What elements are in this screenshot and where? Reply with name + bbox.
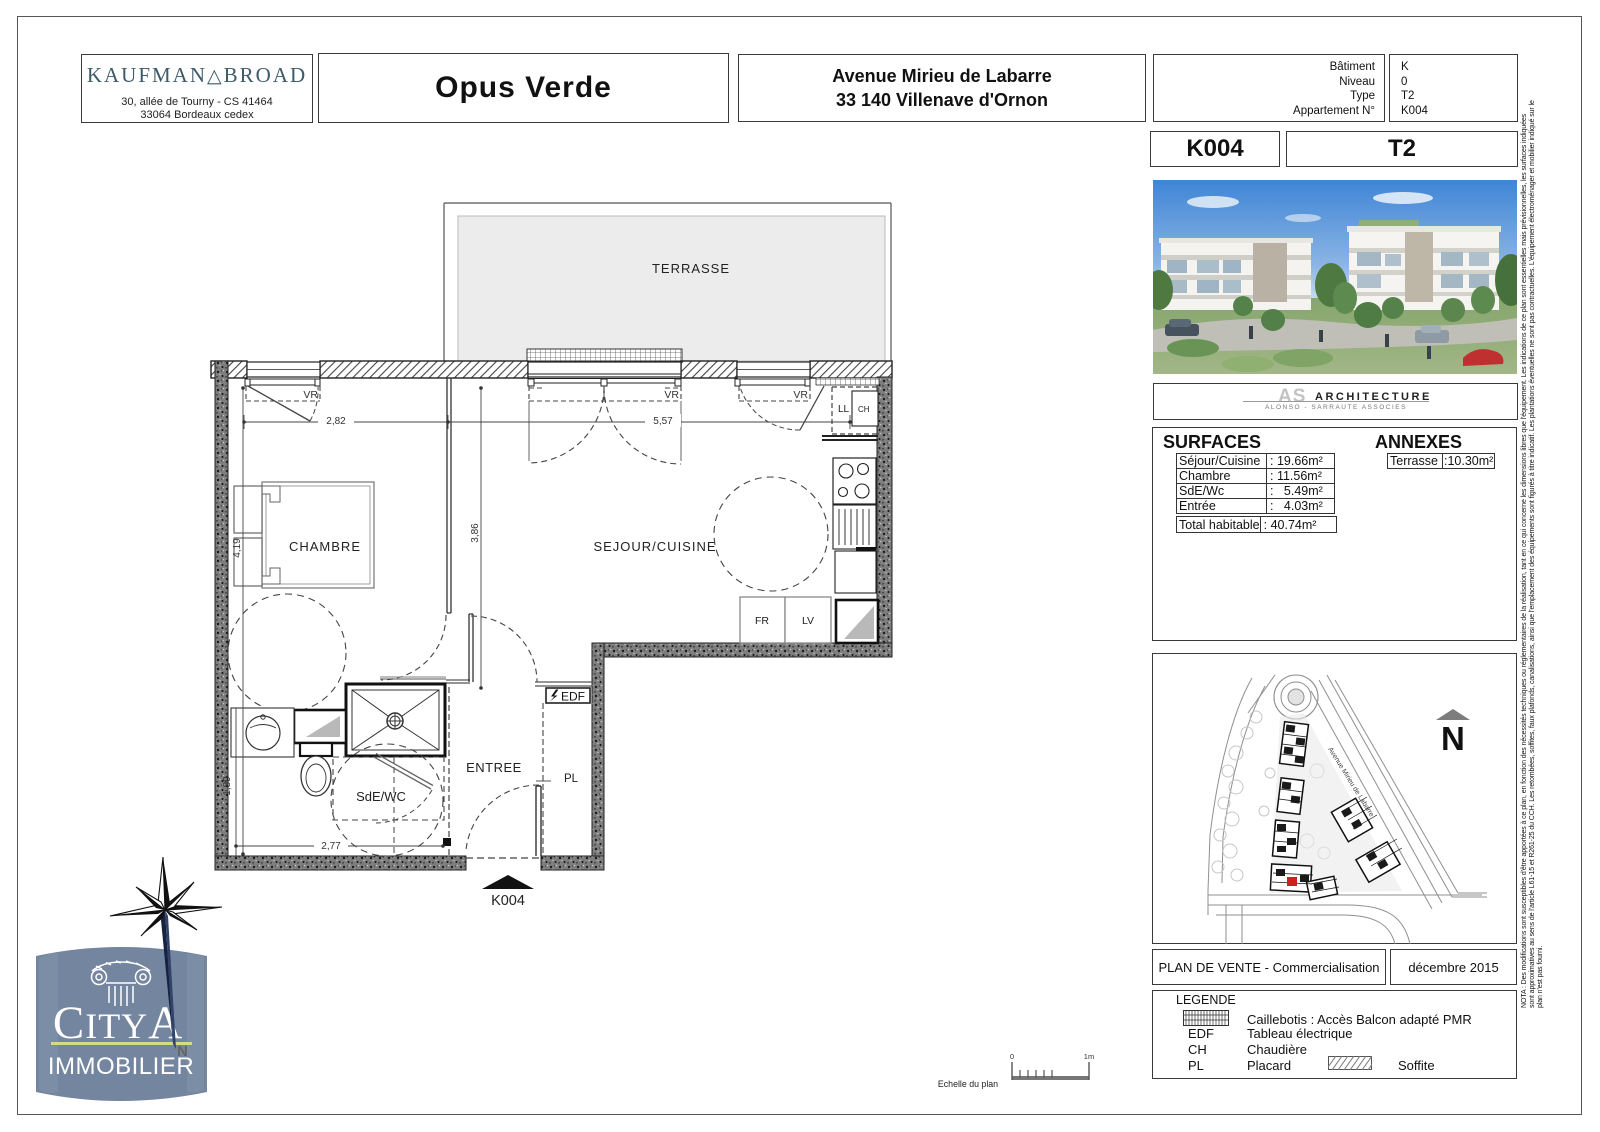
svg-text:N: N: [1441, 720, 1465, 757]
